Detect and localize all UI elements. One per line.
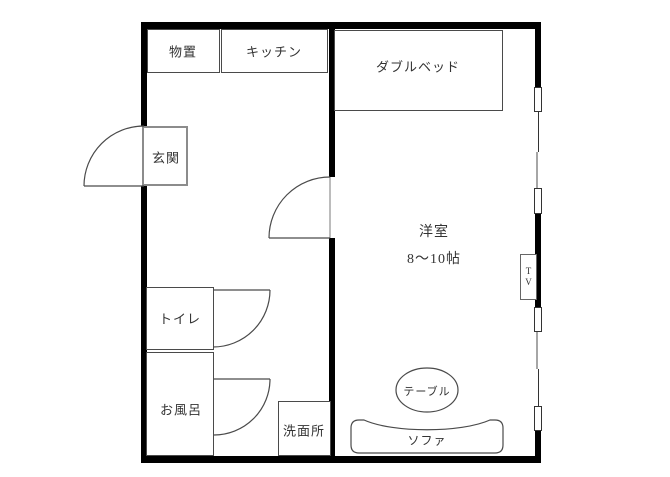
tv-label-line1: T <box>526 266 532 277</box>
floor-plan: T V 物置 キッチン 玄関 トイレ お風呂 洗面所 ダブルベッド 洋室 8〜1… <box>0 0 670 477</box>
toilet-door-arc <box>213 290 270 347</box>
bath-door-arc <box>214 379 270 435</box>
tv-label-line2: V <box>525 277 532 288</box>
toilet-label: トイレ <box>159 309 201 328</box>
storage-label: 物置 <box>169 42 197 61</box>
western-room-label: 洋室 <box>419 221 449 241</box>
kitchen-label: キッチン <box>246 42 302 61</box>
table-label: テーブル <box>403 383 450 399</box>
entrance-door-arc <box>84 126 144 186</box>
entrance-label: 玄関 <box>152 148 180 167</box>
door-and-furniture-shapes <box>0 0 670 477</box>
washroom-label: 洗面所 <box>283 421 325 440</box>
tv-box: T V <box>520 254 537 300</box>
double-bed-label: ダブルベッド <box>376 57 460 76</box>
western-room-size-label: 8〜10帖 <box>407 248 461 268</box>
bath-label: お風呂 <box>160 400 202 419</box>
interior-door-arc <box>269 177 330 238</box>
sofa-label: ソファ <box>407 432 446 449</box>
